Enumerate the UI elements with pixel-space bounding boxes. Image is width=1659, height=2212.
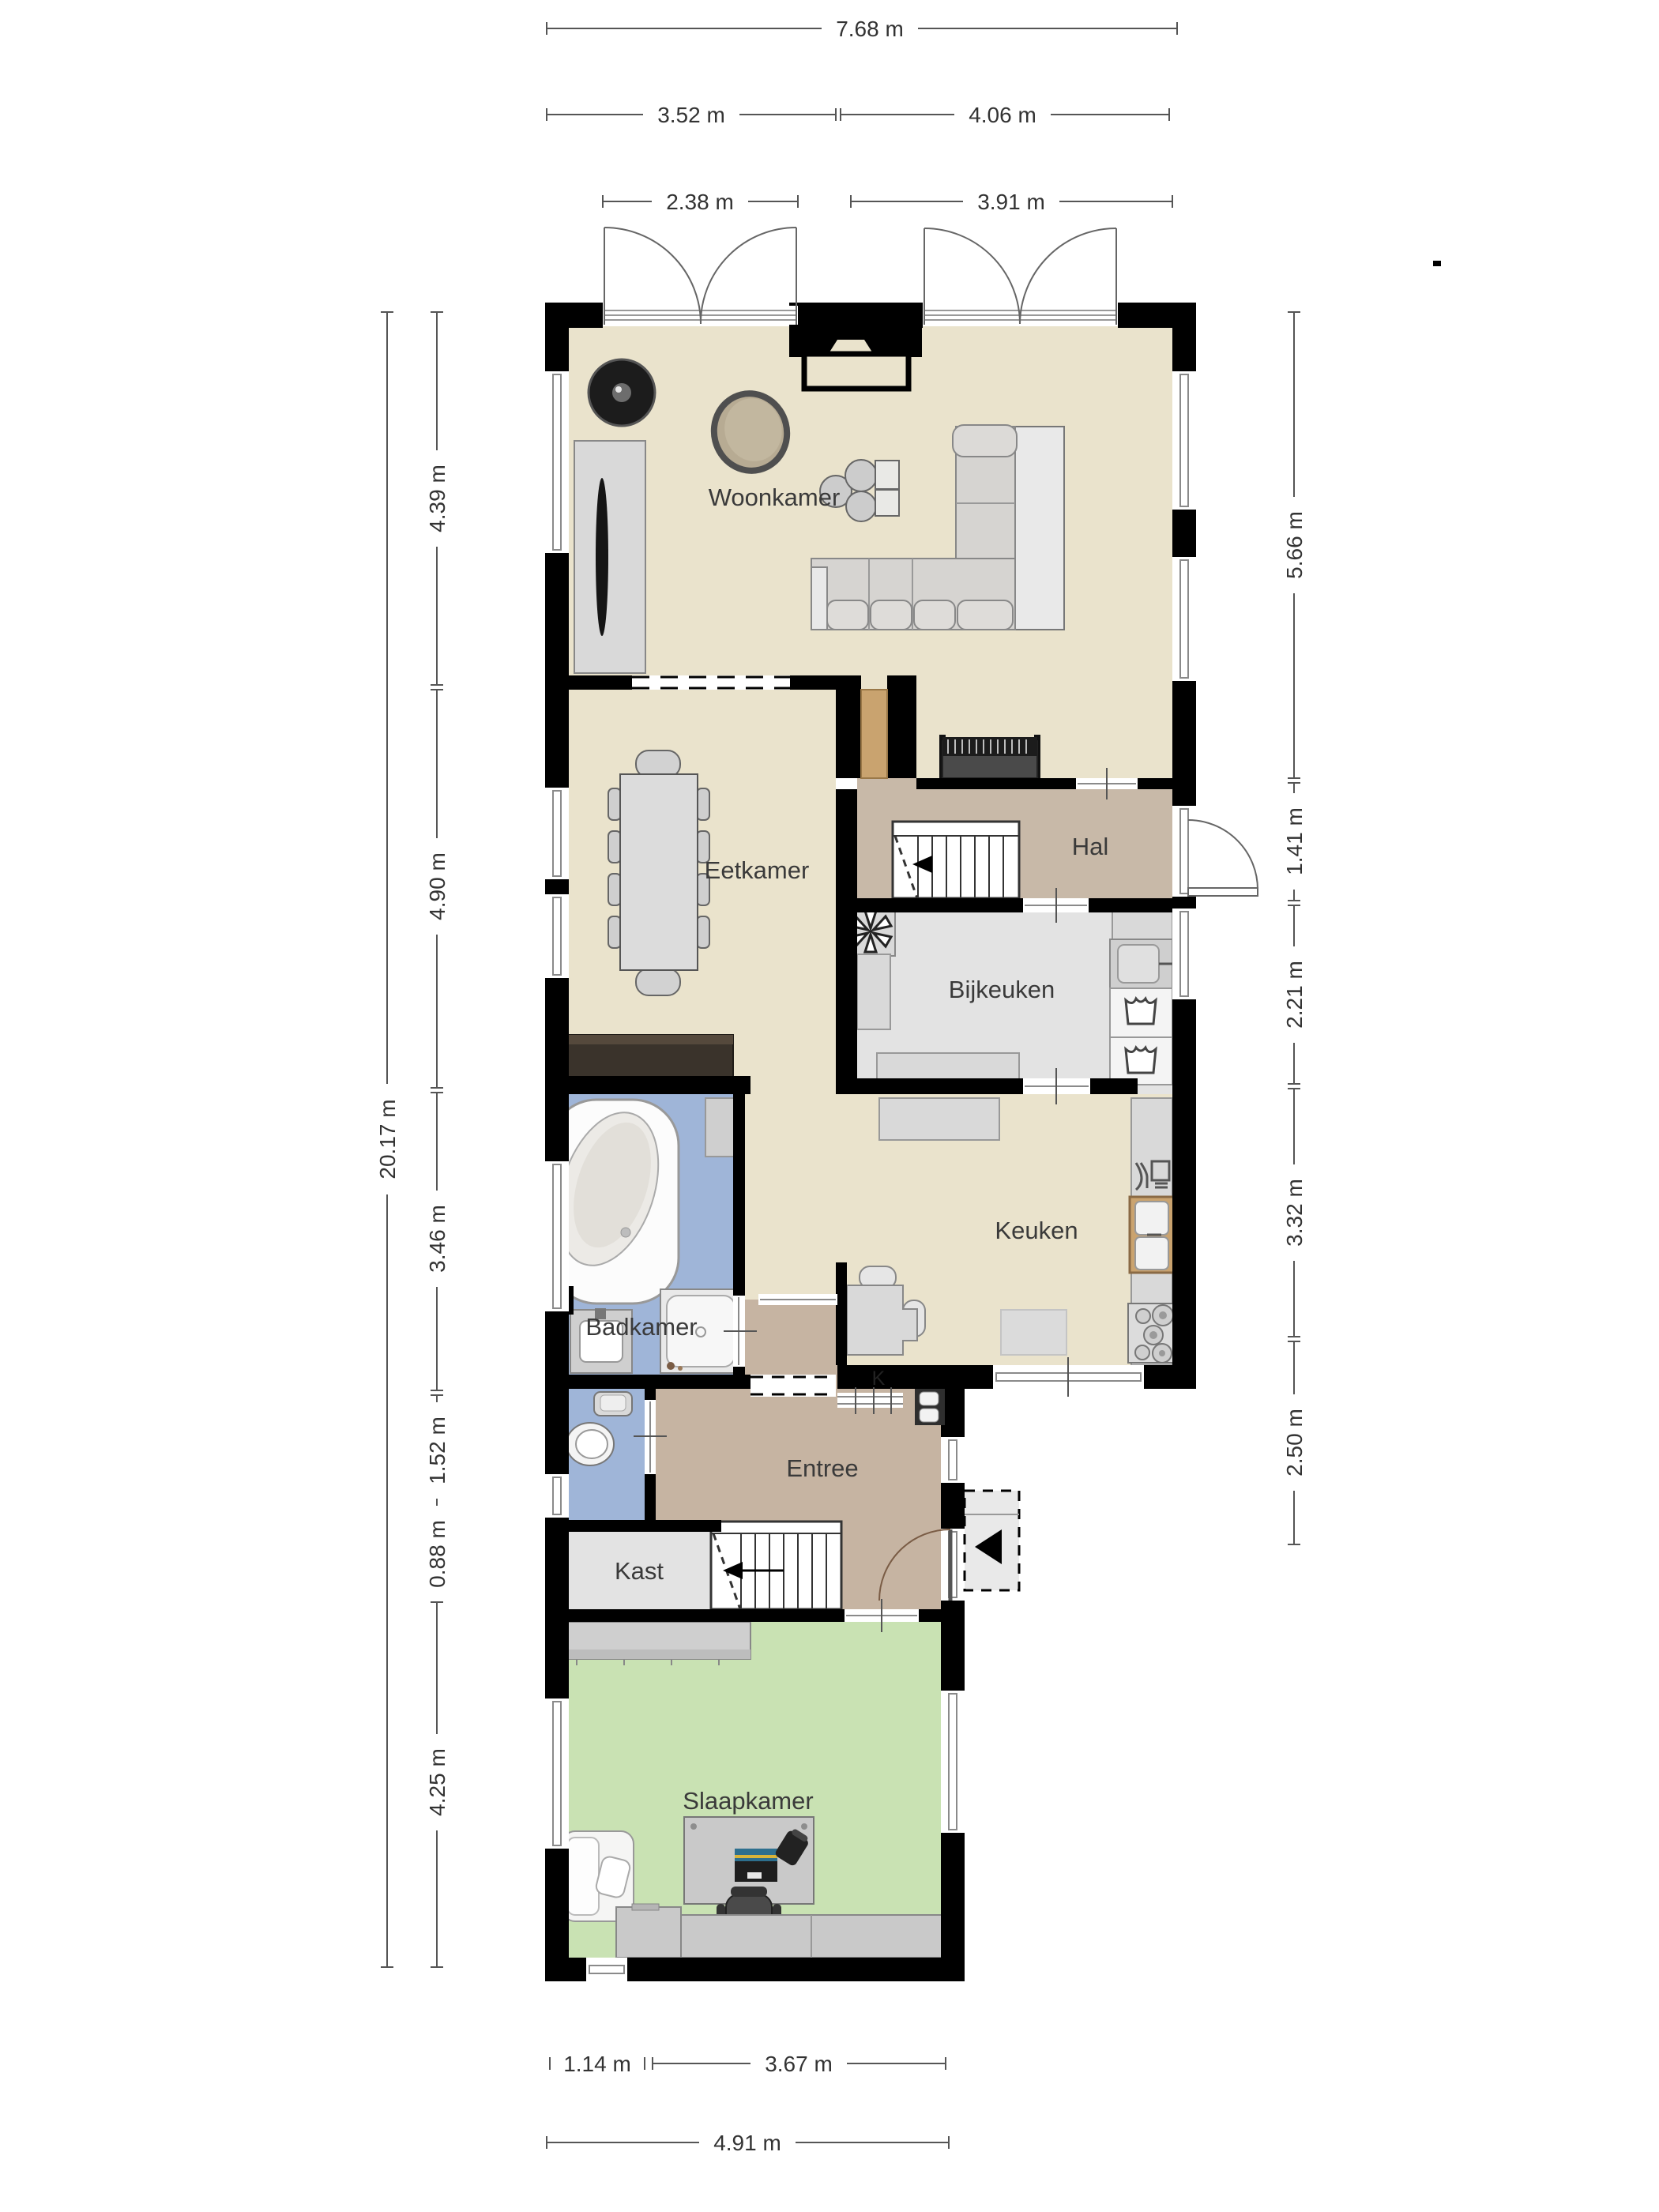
bath-shelf	[705, 1098, 737, 1157]
svg-text:1.14 m: 1.14 m	[563, 2052, 631, 2076]
meter-closet-label: K	[872, 1367, 886, 1390]
dim-left-overall: 20.17 m	[373, 312, 401, 1967]
svg-text:4.91 m: 4.91 m	[713, 2131, 781, 2155]
room-label-entree: Entree	[786, 1454, 858, 1482]
french-door	[923, 228, 1118, 325]
floor-plan-page: Woonkamer Eetkamer Hal Bijkeuken Badkame…	[0, 0, 1659, 2212]
svg-text:2.50 m: 2.50 m	[1282, 1409, 1307, 1477]
counter-block	[879, 1098, 999, 1140]
stove	[1128, 1303, 1174, 1363]
tv-icon	[596, 478, 608, 636]
tv-cabinet	[574, 441, 645, 673]
speaker-center	[612, 383, 631, 402]
stray-dot	[1433, 261, 1441, 266]
room-label-kast: Kast	[615, 1557, 664, 1585]
room-label-badkamer: Badkamer	[585, 1313, 697, 1341]
dim-left-segments: 4.39 m 4.90 m 3.46 m 1.52 m 0.88 m 4.25 …	[423, 312, 451, 1967]
room-label-eetkamer: Eetkamer	[705, 856, 810, 884]
svg-text:7.68 m: 7.68 m	[836, 17, 904, 41]
svg-text:3.32 m: 3.32 m	[1282, 1179, 1307, 1247]
front-door-hal	[1172, 806, 1258, 897]
floor-plan-canvas: Woonkamer Eetkamer Hal Bijkeuken Badkame…	[0, 0, 1659, 2212]
door-swing-arc	[1188, 820, 1258, 890]
coffee-table	[875, 461, 899, 489]
laptop-icon	[735, 1849, 777, 1882]
dim-right-segments: 5.66 m 1.41 m 2.21 m 3.32 m 2.50 m	[1280, 312, 1308, 1544]
laundry-basket-icon	[1126, 1048, 1156, 1073]
svg-text:1.52 m: 1.52 m	[425, 1416, 450, 1484]
svg-text:3.67 m: 3.67 m	[765, 2052, 833, 2076]
svg-text:4.90 m: 4.90 m	[425, 852, 450, 920]
counter	[857, 954, 890, 1029]
wall-hal-south	[841, 898, 1172, 912]
sliding-opening	[632, 675, 790, 690]
dim-bottom-1: 1.14 m 3.67 m	[550, 2049, 946, 2078]
dim-top-2: 3.52 m 4.06 m	[547, 100, 1169, 129]
laundry-basket-icon	[1126, 999, 1156, 1024]
dining-table	[608, 750, 709, 995]
coffee-table	[875, 490, 899, 516]
room-label-keuken: Keuken	[995, 1217, 1078, 1244]
svg-text:20.17 m: 20.17 m	[375, 1099, 400, 1179]
wall-bijkeuken-south	[841, 1078, 1138, 1094]
wood-door	[861, 690, 887, 778]
dim-bottom-2: 4.91 m	[547, 2128, 949, 2157]
svg-text:5.66 m: 5.66 m	[1282, 511, 1307, 579]
dresser	[616, 1907, 681, 1958]
svg-text:4.25 m: 4.25 m	[425, 1748, 450, 1816]
dim-top-3: 2.38 m 3.91 m	[603, 187, 1172, 216]
boiler-niche	[915, 1389, 945, 1425]
svg-text:4.39 m: 4.39 m	[425, 465, 450, 532]
svg-text:4.06 m: 4.06 m	[969, 103, 1036, 127]
stairs-hal	[893, 822, 1019, 898]
french-door	[603, 228, 798, 325]
floor-entree-south	[831, 1532, 941, 1622]
svg-text:1.41 m: 1.41 m	[1282, 807, 1307, 875]
room-label-bijkeuken: Bijkeuken	[949, 976, 1055, 1003]
boiler-icon	[920, 1409, 939, 1422]
dashed-opening	[750, 1375, 836, 1397]
speaker-dot	[615, 386, 622, 393]
boiler-icon	[920, 1392, 939, 1405]
side-table	[845, 460, 877, 491]
room-label-hal: Hal	[1072, 833, 1109, 860]
dim-top-1: 7.68 m	[547, 14, 1177, 43]
door-leaf	[1188, 888, 1258, 896]
room-label-woonkamer: Woonkamer	[709, 483, 841, 511]
svg-text:2.21 m: 2.21 m	[1282, 961, 1307, 1029]
entrance-porch	[965, 1491, 1019, 1590]
room-label-slaapkamer: Slaapkamer	[683, 1787, 813, 1815]
svg-text:3.52 m: 3.52 m	[657, 103, 725, 127]
interior-opening	[758, 1294, 837, 1305]
sideboard	[559, 1035, 733, 1081]
svg-text:0.88 m: 0.88 m	[425, 1520, 450, 1588]
svg-text:2.38 m: 2.38 m	[666, 190, 734, 214]
svg-text:3.46 m: 3.46 m	[425, 1205, 450, 1273]
svg-text:3.91 m: 3.91 m	[977, 190, 1045, 214]
side-table	[846, 491, 876, 521]
stairs-kast	[711, 1522, 841, 1609]
radiator	[939, 735, 1040, 782]
kitchen-rug	[1001, 1310, 1066, 1355]
